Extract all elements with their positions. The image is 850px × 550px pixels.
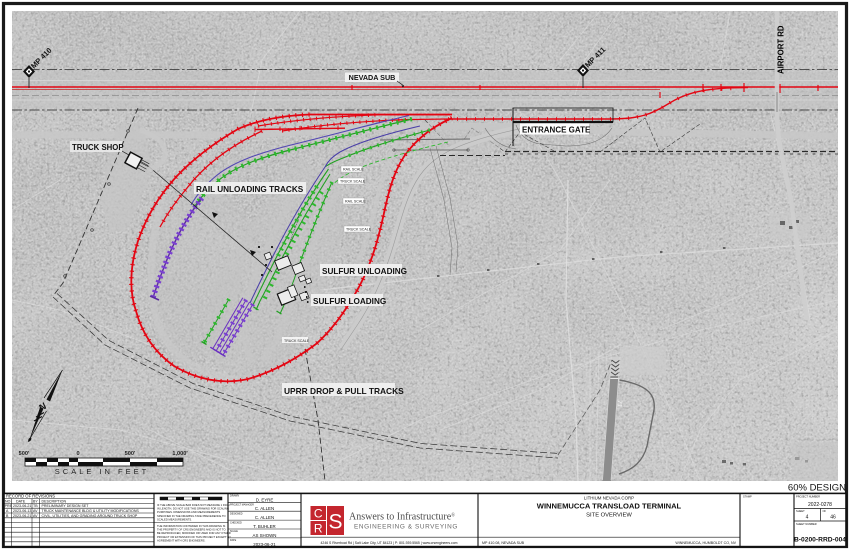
svg-text:SULFUR LOADING: SULFUR LOADING <box>313 297 386 306</box>
svg-text:SCALE: SCALE <box>230 530 238 533</box>
svg-text:S: S <box>328 511 342 534</box>
svg-text:DRAWN: DRAWN <box>230 495 239 498</box>
svg-text:NO: NO <box>5 499 11 503</box>
svg-text:TRUCK SCALE: TRUCK SCALE <box>340 180 366 184</box>
svg-text:DATE: DATE <box>16 499 26 503</box>
svg-text:C: C <box>314 507 323 521</box>
svg-text:PROJECT OR EXTENSION OF THIS P: PROJECT OR EXTENSION OF THIS PROJECT EXC… <box>157 535 231 539</box>
svg-text:AS SHOWN: AS SHOWN <box>253 533 277 538</box>
svg-text:RAIL UNLOADING TRACKS: RAIL UNLOADING TRACKS <box>196 185 304 194</box>
svg-text:B-0200-RRD-004: B-0200-RRD-004 <box>794 537 846 544</box>
svg-text:ENGINEERING & SURVEYING: ENGINEERING & SURVEYING <box>354 524 458 531</box>
svg-text:AV: AV <box>33 509 38 513</box>
svg-text:1,000': 1,000' <box>172 451 188 457</box>
svg-text:WINNEMUCCA, HUMBOLDT CO, NV: WINNEMUCCA, HUMBOLDT CO, NV <box>675 541 736 545</box>
svg-text:C. ALLEN: C. ALLEN <box>255 515 274 520</box>
svg-text:SPECIFIED IN THE DRAWING TAKE: SPECIFIED IN THE DRAWING TAKE PRECEDENCE… <box>157 514 226 518</box>
svg-text:71: 71 <box>615 400 623 408</box>
svg-text:PROJECT NUMBER: PROJECT NUMBER <box>796 495 820 499</box>
svg-text:WINNEMUCCA TRANSLOAD TERMINAL: WINNEMUCCA TRANSLOAD TERMINAL <box>537 502 682 511</box>
svg-text:SITE OVERVIEW: SITE OVERVIEW <box>586 513 632 519</box>
svg-text:STAMP: STAMP <box>743 495 752 499</box>
svg-text:ENTRANCE GATE: ENTRANCE GATE <box>522 126 591 135</box>
svg-text:DESCRIPTION: DESCRIPTION <box>42 499 67 503</box>
svg-text:IN LENGTH, DO NOT USE THIS DRA: IN LENGTH, DO NOT USE THIS DRAWING FOR S… <box>157 507 229 511</box>
svg-text:DATE: DATE <box>230 539 237 542</box>
svg-text:THE INFORMATION CONTAINED IN T: THE INFORMATION CONTAINED IN THIS DRAWIN… <box>157 524 225 528</box>
svg-text:CHECKED: CHECKED <box>230 521 242 524</box>
svg-text:PROJECT MANAGER: PROJECT MANAGER <box>230 504 254 507</box>
svg-text:SULFUR UNLOADING: SULFUR UNLOADING <box>322 267 407 276</box>
svg-text:BE REPRODUCED, MODIFIED OR USE: BE REPRODUCED, MODIFIED OR USED FOR ANY … <box>157 531 231 535</box>
svg-text:TB: TB <box>33 504 38 508</box>
svg-text:D. EYRE: D. EYRE <box>256 497 274 502</box>
svg-text:AIRPORT RD: AIRPORT RD <box>777 25 786 74</box>
svg-text:TRUCK SHOP: TRUCK SHOP <box>72 143 124 152</box>
svg-text:Answers to Infrastructure®: Answers to Infrastructure® <box>349 512 455 523</box>
svg-text:2023-06-21: 2023-06-21 <box>253 542 276 547</box>
svg-text:2022-0278: 2022-0278 <box>808 502 832 508</box>
svg-text:500': 500' <box>125 451 136 457</box>
svg-text:PRE: PRE <box>5 504 13 508</box>
svg-text:SCALE IN FEET: SCALE IN FEET <box>55 467 149 476</box>
svg-text:PRELIMINARY DESIGN SET: PRELIMINARY DESIGN SET <box>42 504 90 508</box>
svg-text:60% DESIGN: 60% DESIGN <box>788 483 846 494</box>
svg-text:OF: OF <box>823 509 827 513</box>
svg-text:SCALED MEASUREMENTS.: SCALED MEASUREMENTS. <box>157 517 192 521</box>
svg-text:DESIGNED: DESIGNED <box>230 512 243 515</box>
svg-text:PURPOSES. DIMENSIONS AND MEAS: PURPOSES. DIMENSIONS AND MEASUREMENTS <box>157 510 220 514</box>
svg-text:2023-06-13: 2023-06-13 <box>13 509 31 513</box>
svg-text:4246 S Riverboat Rd | Salt Lak: 4246 S Riverboat Rd | Salt Lake City, UT… <box>321 541 458 545</box>
svg-text:MP 410.08, NEVADA SUB: MP 410.08, NEVADA SUB <box>482 541 525 545</box>
svg-text:TRUCK SCALE: TRUCK SCALE <box>346 228 372 232</box>
svg-text:THE PROPERTY OF CRS ENGINEERS: THE PROPERTY OF CRS ENGINEERS AND IS NOT… <box>157 528 226 532</box>
svg-text:SHEET NUMBER: SHEET NUMBER <box>796 522 817 526</box>
svg-text:UPRR DROP & PULL TRACKS: UPRR DROP & PULL TRACKS <box>284 386 404 396</box>
svg-text:500': 500' <box>19 451 30 457</box>
svg-text:C. ALLEN: C. ALLEN <box>255 506 274 511</box>
svg-text:BY: BY <box>33 499 38 503</box>
svg-text:RAIL SCALE: RAIL SCALE <box>343 168 364 172</box>
svg-text:CIVIL, UTILITIES, AND GRADING: CIVIL, UTILITIES, AND GRADING AROUND TRU… <box>42 514 138 518</box>
svg-text:RAIL SCALE: RAIL SCALE <box>345 200 366 204</box>
svg-text:2023-06-21: 2023-06-21 <box>13 504 31 508</box>
svg-text:R: R <box>314 522 323 536</box>
svg-text:0: 0 <box>76 451 79 457</box>
svg-text:LITHIUM NEVADA CORP: LITHIUM NEVADA CORP <box>584 496 634 501</box>
svg-text:IF THE ABOVE SCALE BAR DOES NO: IF THE ABOVE SCALE BAR DOES NOT MEASURE … <box>157 503 230 507</box>
svg-text:46: 46 <box>830 515 836 521</box>
svg-text:AGREEMENT WITH CRS ENGINEERS.: AGREEMENT WITH CRS ENGINEERS. <box>157 538 206 542</box>
svg-text:NEVADA SUB: NEVADA SUB <box>349 73 396 82</box>
svg-text:2023-06-21: 2023-06-21 <box>13 514 31 518</box>
svg-text:TRUCK SCALE: TRUCK SCALE <box>284 339 310 343</box>
svg-text:RECORD OF REVISIONS: RECORD OF REVISIONS <box>6 494 55 499</box>
svg-text:SHEET: SHEET <box>796 509 805 513</box>
svg-text:TRUCK MAINTENANCE BLDG & UTILI: TRUCK MAINTENANCE BLDG & UTILITY MODIFIC… <box>42 509 140 513</box>
svg-text:T. BUHLER: T. BUHLER <box>253 524 275 529</box>
svg-text:AV: AV <box>33 514 38 518</box>
svg-text:4: 4 <box>806 515 809 521</box>
